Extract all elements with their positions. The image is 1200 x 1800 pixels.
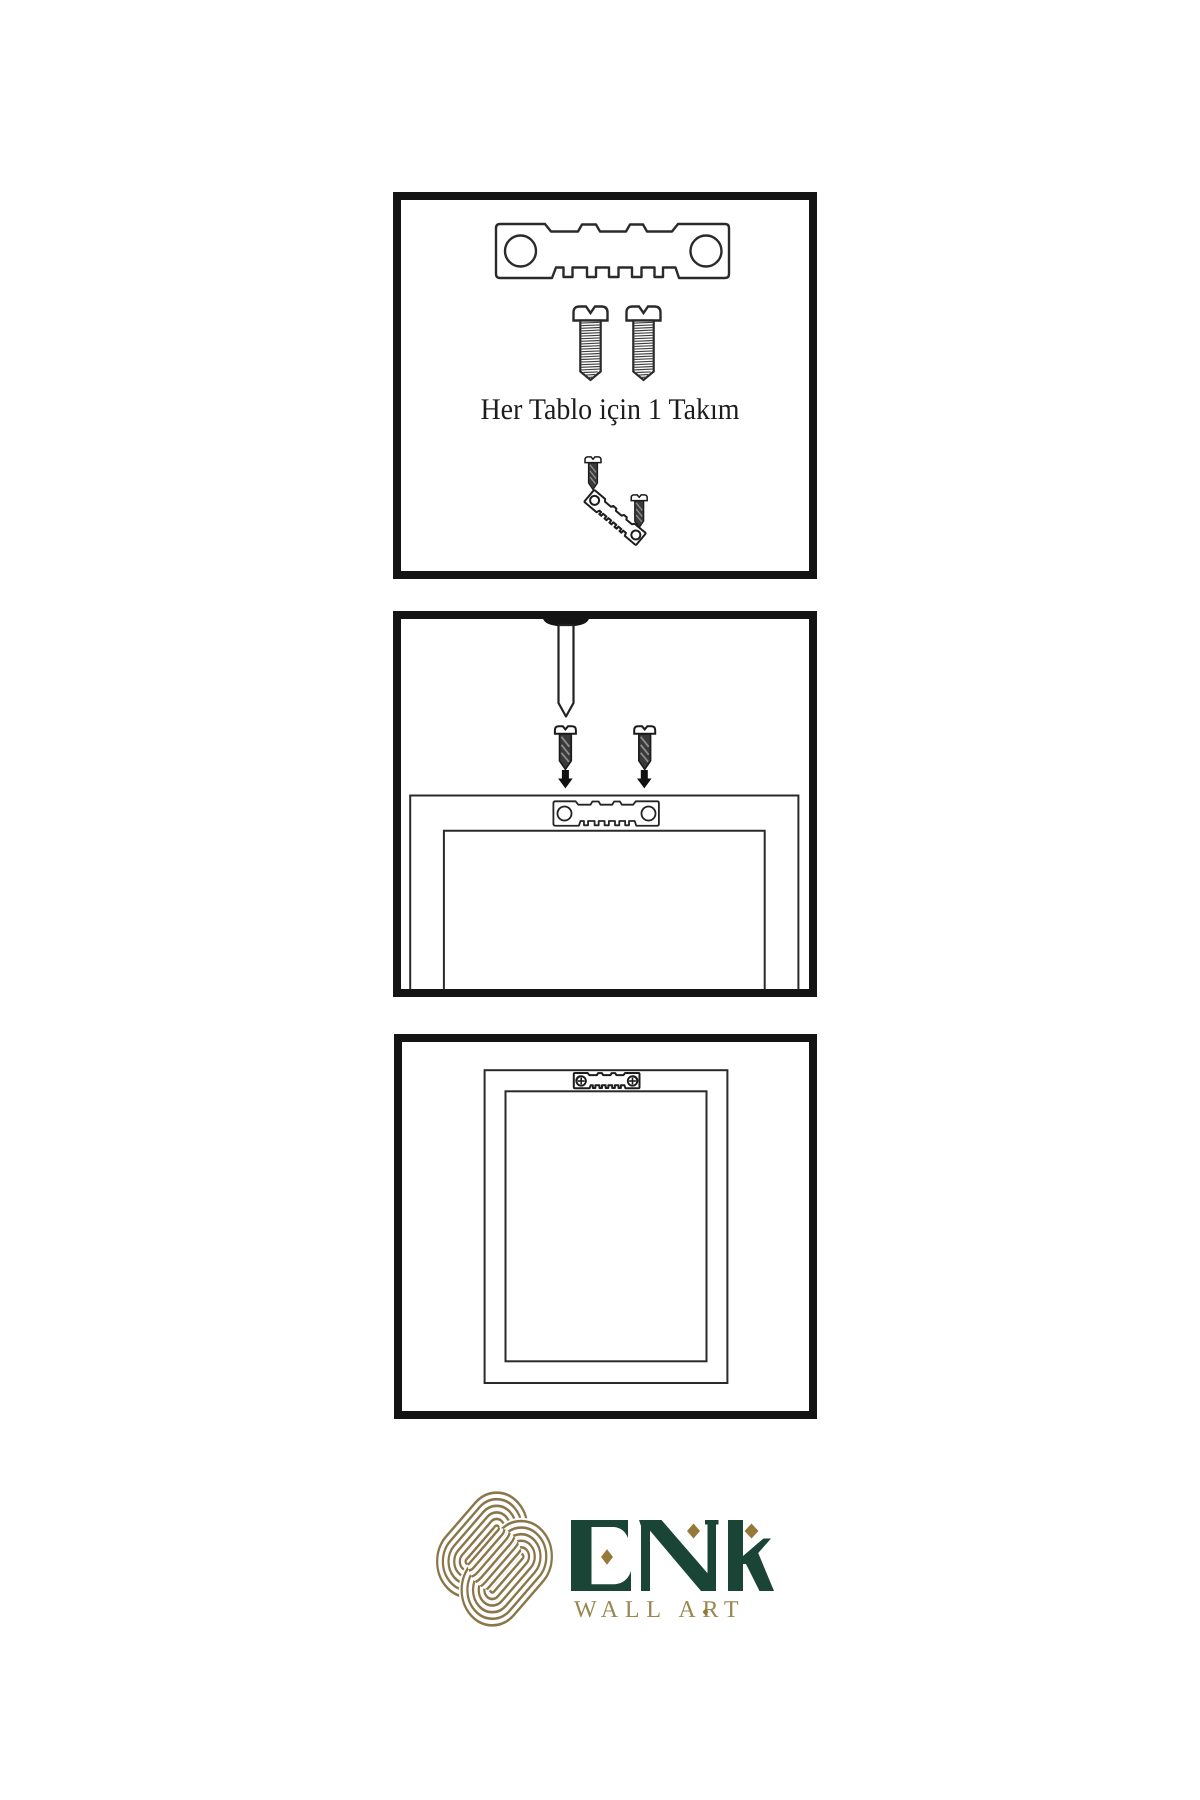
svg-text:Her Tablo için 1 Takım: Her Tablo için 1 Takım [481,393,740,426]
svg-text:WALL ART: WALL ART [574,1597,745,1623]
